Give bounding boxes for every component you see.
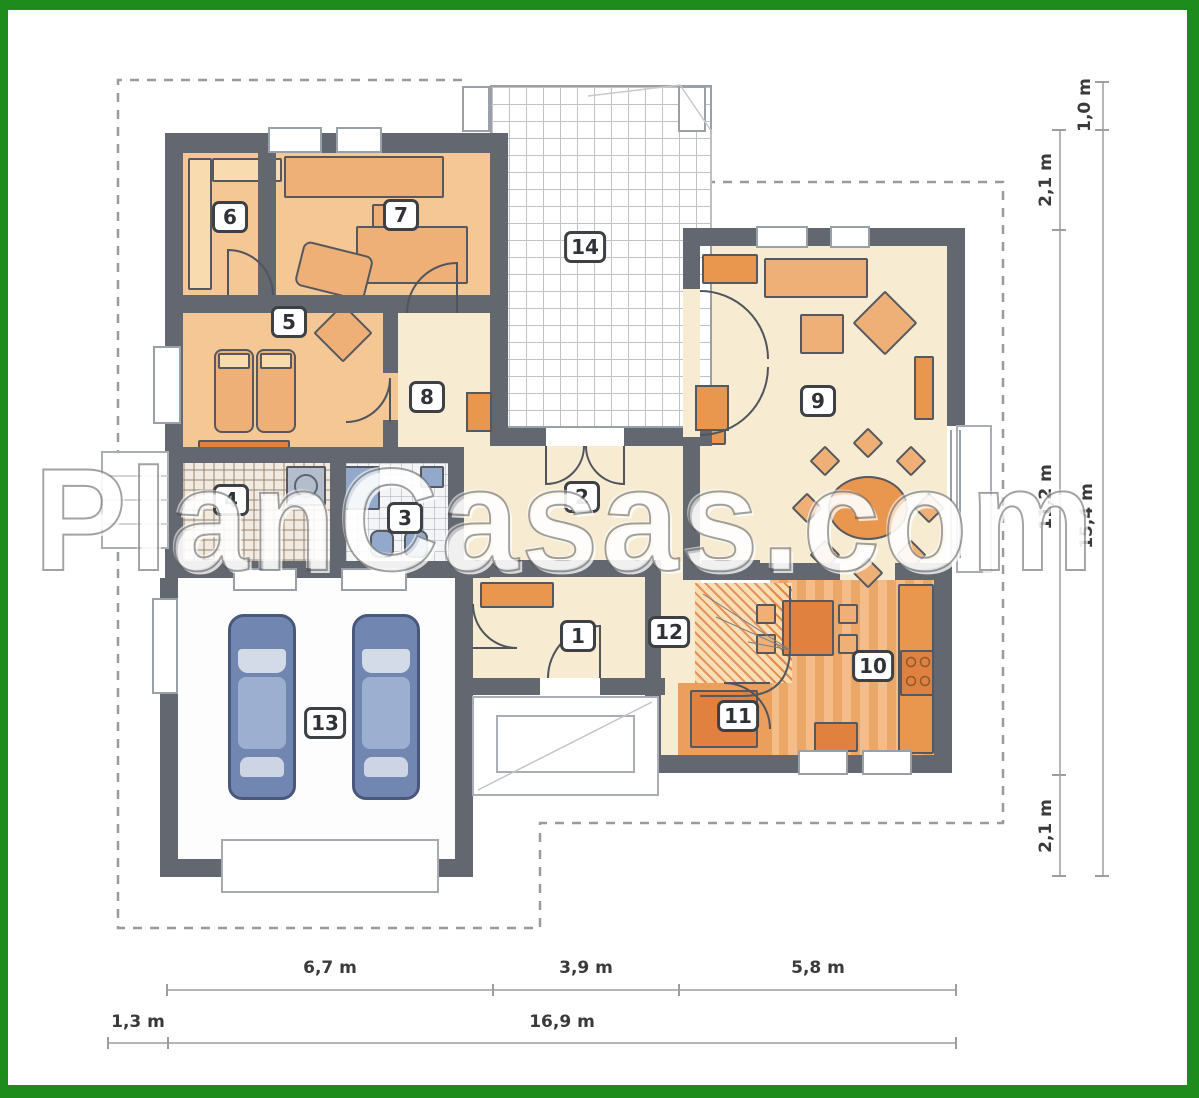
dimension-tick <box>1095 875 1109 877</box>
dimension-label: 2,1 m <box>1036 781 1056 871</box>
dimension-line <box>167 989 957 991</box>
dimension-label: 16,9 m <box>512 1012 612 1032</box>
dimension-label: 3,9 m <box>536 958 636 978</box>
room-badge-5: 5 <box>271 306 307 338</box>
room-badge-11: 11 <box>717 700 759 732</box>
dimension-label: 5,8 m <box>768 958 868 978</box>
room-badge-6: 6 <box>212 201 248 233</box>
dimension-tick <box>1052 129 1066 131</box>
dimension-tick <box>1052 774 1066 776</box>
watermark: PlanCasas.com <box>34 436 1136 604</box>
dimension-tick <box>955 984 957 996</box>
room-badge-10: 10 <box>852 650 894 682</box>
room-badge-7: 7 <box>383 199 419 231</box>
dimension-tick <box>167 1037 169 1049</box>
dimension-tick <box>107 1037 109 1049</box>
room-badge-1: 1 <box>560 620 596 652</box>
dimension-label: 1,0 m <box>1075 60 1095 150</box>
dimension-label: 1,3 m <box>88 1012 188 1032</box>
floor-plan-image: 1 2 3 4 5 6 7 8 9 10 11 12 13 14 PlanCas… <box>0 0 1199 1098</box>
dimension-label: 6,7 m <box>280 958 380 978</box>
dimension-tick <box>1052 875 1066 877</box>
dimension-tick <box>166 984 168 996</box>
dimension-tick <box>678 984 680 996</box>
room-badge-14: 14 <box>564 231 606 263</box>
garage-door <box>222 840 438 892</box>
dimension-tick <box>1052 229 1066 231</box>
dimension-tick <box>955 1037 957 1049</box>
stove-burners <box>907 658 930 686</box>
room-badge-12: 12 <box>648 616 690 648</box>
dimension-line <box>108 1042 957 1044</box>
dimension-tick <box>1095 81 1109 83</box>
dimension-label: 2,1 m <box>1036 135 1056 225</box>
room-badge-9: 9 <box>800 385 836 417</box>
roof-line <box>588 85 712 228</box>
room-badge-13: 13 <box>304 707 346 739</box>
dimension-tick <box>1095 129 1109 131</box>
dimension-tick <box>492 984 494 996</box>
room-badge-8: 8 <box>409 381 445 413</box>
